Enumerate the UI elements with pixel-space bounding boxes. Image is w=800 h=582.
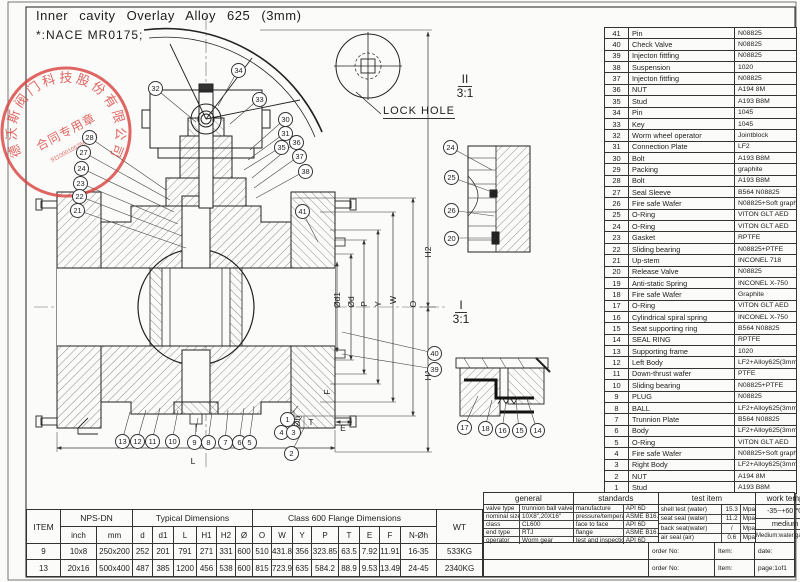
part-callout-balloon: 33: [252, 92, 267, 107]
sub-column-header: mm: [97, 527, 133, 544]
part-material: N08825: [735, 267, 796, 277]
part-name: Sliding bearing: [629, 380, 735, 390]
sub-column-header: H2: [217, 527, 236, 544]
order-row: order No: Item: page:1of1: [484, 560, 794, 576]
parts-table-row: 16 Cylindrical spiral spring INCONEL X-7…: [605, 312, 796, 323]
part-callout-balloon: 30: [278, 112, 293, 127]
dimension-value: 487: [133, 560, 153, 576]
part-number: 34: [605, 108, 629, 118]
part-name: Gasket: [629, 232, 735, 242]
part-number: 21: [605, 255, 629, 265]
part-number: 15: [605, 323, 629, 333]
weight-value: 2340KG: [437, 560, 482, 576]
order-item-label: Item:: [715, 560, 755, 576]
parts-table-row: 3 Right Body LF2+Alloy625(3mm): [605, 460, 796, 471]
parts-table-row: 18 Fire safe Wafer Graphite: [605, 289, 796, 300]
part-material: LF2+Alloy625(3mm): [735, 357, 796, 367]
part-material: VITON GLT AED: [735, 210, 796, 220]
part-name: O-Ring: [629, 210, 735, 220]
order-no-label: order No:: [649, 543, 715, 559]
test-label: back seat(water): [659, 524, 722, 533]
part-number: 22: [605, 244, 629, 254]
general-value: CL600: [520, 521, 573, 528]
part-number: 38: [605, 62, 629, 72]
group-header-class600-flange: Class 600 Flange Dimensions: [253, 510, 437, 527]
part-callout-balloon: 28: [82, 130, 97, 145]
part-callout-balloon: 36: [289, 135, 304, 150]
sub-column-header: F: [380, 527, 401, 544]
part-number: 36: [605, 85, 629, 95]
detail-i-name: I: [455, 299, 466, 313]
test-unit: Mpa: [741, 524, 755, 533]
parts-table-row: 29 Packing graphite: [605, 164, 796, 175]
sub-column-header: P: [312, 527, 339, 544]
dimension-value: 356: [293, 544, 312, 560]
sub-column-header: T: [339, 527, 360, 544]
standards-row: face to face API 6D: [574, 521, 658, 529]
part-material: INCONEL X-750: [735, 312, 796, 322]
general-label: class: [484, 521, 520, 528]
part-material: LF2+Alloy625(3mm): [735, 426, 796, 436]
part-callout-balloon: 38: [298, 164, 313, 179]
dimension-label: O: [408, 301, 418, 308]
part-name: NUT: [629, 471, 735, 481]
sub-column-header: d1: [153, 527, 174, 544]
dimension-value: 13.49: [380, 560, 401, 576]
test-label: shell test (water): [659, 505, 722, 514]
standards-label: face to face: [574, 521, 624, 528]
dimension-value: 584.2: [312, 560, 339, 576]
part-material: A193 B8M: [735, 153, 796, 163]
part-name: Seal Sleeve: [629, 187, 735, 197]
part-callout-balloon: 14: [530, 423, 545, 438]
part-callout-balloon: 26: [444, 203, 459, 218]
test-row: air seal (air) 0.6 Mpa: [659, 534, 755, 543]
order-no-label: order No:: [649, 560, 715, 576]
part-number: 13: [605, 346, 629, 356]
part-number: 4: [605, 448, 629, 458]
dimension-label: Y: [373, 301, 383, 307]
dimension-value: 10x8: [61, 544, 97, 560]
part-number: 17: [605, 301, 629, 311]
part-name: PLUG: [629, 392, 735, 402]
detail-ii-label: II 3:1: [450, 73, 480, 100]
part-number: 2: [605, 471, 629, 481]
part-material: Graphite: [735, 289, 796, 299]
part-material: RPTFE: [735, 335, 796, 345]
detail-i-label: I 3:1: [446, 299, 476, 326]
dimension-value: 791: [174, 544, 197, 560]
dimension-label: T: [308, 417, 313, 427]
dimension-label: P: [359, 301, 369, 307]
order-date-label: date:: [755, 543, 794, 559]
dimension-value: 600: [236, 544, 253, 560]
detail-i-scale: 3:1: [446, 313, 476, 326]
dimension-value: 271: [197, 544, 217, 560]
part-material: A193 B8M: [735, 96, 796, 106]
part-number: 23: [605, 232, 629, 242]
part-number: 9: [605, 392, 629, 402]
part-name: Bolt: [629, 153, 735, 163]
part-number: 25: [605, 210, 629, 220]
part-name: Connection Plate: [629, 142, 735, 152]
row-item-number: 9: [27, 544, 61, 560]
parts-table-row: 21 Up-stem INCONEL 718: [605, 255, 796, 266]
dimension-value: 500x400: [97, 560, 133, 576]
order-rows: order No: Item: date: order No: Item: pa…: [484, 543, 794, 576]
part-name: Injecton fittfing: [629, 51, 735, 61]
row-item-number: 13: [27, 560, 61, 576]
dimension-label: Ød: [346, 296, 356, 307]
parts-table-row: 7 Trunnion Plate B564 N08825: [605, 414, 796, 425]
dimension-label: Ød1: [332, 292, 342, 308]
part-name: O-Ring: [629, 301, 735, 311]
part-name: Worm wheel operator: [629, 130, 735, 140]
note-overlay-spec: Inner cavity Overlay Alloy 625 (3mm): [36, 8, 301, 23]
part-number: 5: [605, 437, 629, 447]
test-value: 11.2: [722, 515, 741, 524]
dimension-value: 24-45: [401, 560, 437, 576]
general-label: end type: [484, 529, 520, 536]
part-name: Anti-static Spring: [629, 278, 735, 288]
general-row: nominal size 10X8",20X16": [484, 513, 573, 521]
part-material: N08825: [735, 39, 796, 49]
standards-row: manufacture API 6D: [574, 505, 658, 513]
dimension-value: 9.53: [360, 560, 380, 576]
part-number: 12: [605, 357, 629, 367]
sub-column-header: H1: [197, 527, 217, 544]
part-callout-balloon: 8: [201, 435, 216, 450]
part-number: 31: [605, 142, 629, 152]
parts-table-row: 24 O-Ring VITON GLT AED: [605, 221, 796, 232]
part-name: O-Ring: [629, 221, 735, 231]
note-nace: *:NACE MR0175;: [36, 28, 143, 42]
general-row: valve type trunnion ball valve: [484, 505, 573, 513]
part-material: B564 N08825: [735, 187, 796, 197]
dimension-label: F: [322, 389, 332, 394]
part-callout-balloon: 7: [218, 435, 233, 450]
parts-table-row: 25 O-Ring VITON GLT AED: [605, 210, 796, 221]
part-material: LF2+Alloy625(3mm): [735, 460, 796, 470]
dimension-value: 7.92: [360, 544, 380, 560]
part-callout-balloon: 35: [274, 140, 289, 155]
part-number: 18: [605, 289, 629, 299]
standards-value: API 6D: [624, 521, 658, 528]
standards-header: standards: [574, 493, 658, 505]
test-row: shell test (water) 15.3 Mpa: [659, 505, 755, 515]
part-name: Fire safe Wafer: [629, 289, 735, 299]
medium-header: medium: [756, 519, 800, 530]
part-callout-balloon: 27: [76, 145, 91, 160]
part-callout-balloon: 21: [70, 203, 85, 218]
part-material: INCONEL X-750: [735, 278, 796, 288]
test-item-section: test item shell test (water) 15.3 Mpa se…: [659, 493, 756, 542]
part-callout-balloon: 34: [231, 63, 246, 78]
part-name: Trunnion Plate: [629, 414, 735, 424]
part-name: Right Body: [629, 460, 735, 470]
order-date-label: page:1of1: [755, 560, 794, 576]
parts-table-row: 33 Key 1045: [605, 119, 796, 130]
dimension-label: W: [388, 296, 398, 304]
parts-table-row: 22 Sliding bearing N08825+PTFE: [605, 244, 796, 255]
part-number: 33: [605, 119, 629, 129]
test-unit: Mpa: [741, 505, 755, 514]
part-number: 16: [605, 312, 629, 322]
part-name: Check Valve: [629, 39, 735, 49]
dimension-value: 63.5: [339, 544, 360, 560]
part-callout-balloon: 37: [292, 149, 307, 164]
test-row: back seat(water) / Mpa: [659, 524, 755, 534]
standards-label: manufacture: [574, 505, 624, 512]
part-number: 40: [605, 39, 629, 49]
part-callout-balloon: 2: [284, 446, 299, 461]
parts-table-row: 13 Supporting frame 1020: [605, 346, 796, 357]
parts-table-row: 37 Injecton fittfing N08825: [605, 73, 796, 84]
dimension-value: 250x200: [97, 544, 133, 560]
dimension-value: 600: [236, 560, 253, 576]
part-material: N08825+PTFE: [735, 244, 796, 254]
part-number: 7: [605, 414, 629, 424]
part-material: INCONEL 718: [735, 255, 796, 265]
part-number: 19: [605, 278, 629, 288]
part-number: 35: [605, 96, 629, 106]
part-material: N08825: [735, 392, 796, 402]
standards-row: flange ASME B16.5: [574, 529, 658, 537]
part-name: Sliding bearing: [629, 244, 735, 254]
sub-column-header: Ø: [236, 527, 253, 544]
detail-ii-name: II: [458, 73, 473, 87]
part-material: A194 8M: [735, 471, 796, 481]
parts-table: 41 Pin N08825 40 Check Valve N08825 39 I…: [604, 27, 797, 494]
test-value: 15.3: [722, 505, 741, 514]
part-number: 11: [605, 369, 629, 379]
dimension-value: 431.8: [272, 544, 293, 560]
dimension-value: 538: [217, 560, 236, 576]
test-item-header: test item: [659, 493, 755, 505]
column-header-wt: WT: [437, 510, 482, 544]
part-callout-balloon: 11: [145, 434, 160, 449]
part-name: Suspension: [629, 62, 735, 72]
dimension-value: 252: [133, 544, 153, 560]
parts-table-row: 40 Check Valve N08825: [605, 39, 796, 50]
parts-table-row: 4 Fire safe Wafer N08825+Soft graphite: [605, 448, 796, 459]
standards-value: API 6D: [624, 505, 658, 512]
part-callout-balloon: 1: [280, 412, 295, 427]
test-value: 0.6: [722, 534, 741, 543]
part-material: LF2+Alloy625(3mm): [735, 403, 796, 413]
part-callout-balloon: 32: [148, 81, 163, 96]
dimension-table: ITEM NPS-DN Typical Dimensions Class 600…: [26, 509, 483, 577]
part-number: 29: [605, 164, 629, 174]
part-material: RPTFE: [735, 232, 796, 242]
dimension-label: E: [340, 423, 346, 433]
part-callout-balloon: 40: [427, 346, 442, 361]
dimension-value: 88.9: [339, 560, 360, 576]
part-number: 6: [605, 426, 629, 436]
general-label: valve type: [484, 505, 520, 512]
test-unit: Mpa: [741, 534, 755, 543]
dimension-value: 1200: [174, 560, 197, 576]
order-row: order No: Item: date:: [484, 543, 794, 560]
parts-table-row: 8 BALL LF2+Alloy625(3mm): [605, 403, 796, 414]
part-name: SEAL RING: [629, 335, 735, 345]
part-material: N08825: [735, 28, 796, 38]
part-callout-balloon: 39: [427, 362, 442, 377]
part-material: A193 B8M: [735, 176, 796, 186]
dimension-value: 323.85: [312, 544, 339, 560]
weight-value: 533KG: [437, 544, 482, 560]
parts-table-row: 31 Connection Plate LF2: [605, 142, 796, 153]
parts-table-row: 35 Stud A193 B8M: [605, 96, 796, 107]
sub-column-header: L: [174, 527, 197, 544]
parts-table-row: 27 Seal Sleeve B564 N08825: [605, 187, 796, 198]
part-material: graphite: [735, 164, 796, 174]
part-callout-balloon: 22: [72, 189, 87, 204]
parts-table-row: 19 Anti-static Spring INCONEL X-750: [605, 278, 796, 289]
part-name: Key: [629, 119, 735, 129]
part-material: VITON GLT AED: [735, 437, 796, 447]
part-callout-balloon: 24: [443, 140, 458, 155]
order-empty-cell: [484, 560, 649, 576]
part-callout-balloon: 12: [130, 434, 145, 449]
part-name: Bolt: [629, 176, 735, 186]
standards-value: ASME B16.34: [624, 513, 658, 520]
part-number: 26: [605, 198, 629, 208]
parts-table-row: 14 SEAL RING RPTFE: [605, 335, 796, 346]
dimension-value: 456: [197, 560, 217, 576]
part-material: VITON GLT AED: [735, 301, 796, 311]
parts-table-row: 10 Sliding bearing N08825+PTFE: [605, 380, 796, 391]
medium-value: Medium:water,gas,oil.: [756, 530, 800, 543]
test-label: air seal (air): [659, 534, 722, 543]
part-number: 28: [605, 176, 629, 186]
sub-column-header: W: [272, 527, 293, 544]
part-material: N08825+PTFE: [735, 380, 796, 390]
parts-table-row: 15 Seat supporting ring B564 N08825: [605, 323, 796, 334]
dimension-value: 635: [293, 560, 312, 576]
dimension-label: L: [191, 456, 196, 466]
part-name: BALL: [629, 403, 735, 413]
sub-column-header: N-Øh: [401, 527, 437, 544]
standards-row: pressure/temperature ASME B16.34: [574, 513, 658, 521]
general-header: general: [484, 493, 573, 505]
dimension-value: 510: [253, 544, 272, 560]
detail-ii-scale: 3:1: [450, 87, 480, 100]
part-callout-balloon: 5: [242, 435, 257, 450]
part-material: N08825: [735, 51, 796, 61]
part-name: NUT: [629, 85, 735, 95]
part-number: 41: [605, 28, 629, 38]
general-value: trunnion ball valve: [520, 505, 573, 512]
standards-label: pressure/temperature: [574, 513, 624, 520]
parts-table-row: 12 Left Body LF2+Alloy625(3mm): [605, 357, 796, 368]
parts-table-row: 28 Bolt A193 B8M: [605, 176, 796, 187]
part-name: Fire safe Wafer: [629, 448, 735, 458]
general-section: general valve type trunnion ball valve n…: [484, 493, 574, 542]
part-name: Fire safe Wafer: [629, 198, 735, 208]
parts-table-row: 34 Pin 1045: [605, 108, 796, 119]
part-material: 1045: [735, 108, 796, 118]
part-callout-balloon: 10: [165, 434, 180, 449]
part-callout-balloon: 18: [478, 421, 493, 436]
sub-column-header: inch: [61, 527, 97, 544]
parts-table-row: 6 Body LF2+Alloy625(3mm): [605, 426, 796, 437]
general-row: class CL600: [484, 521, 573, 529]
general-value: 10X8",20X16": [520, 513, 573, 520]
group-header-nps-dn: NPS-DN: [61, 510, 133, 527]
part-callout-balloon: 9: [187, 435, 202, 450]
test-row: seat seal (water) 11.2 Mpa: [659, 515, 755, 525]
part-name: Injecton fittfing: [629, 73, 735, 83]
part-name: Seat supporting ring: [629, 323, 735, 333]
parts-table-row: 26 Fire safe Wafer N08825+Soft graphite: [605, 198, 796, 209]
sub-column-header: E: [360, 527, 380, 544]
part-number: 20: [605, 267, 629, 277]
dimension-value: 11.91: [380, 544, 401, 560]
dimension-value: 723.9: [272, 560, 293, 576]
parts-table-row: 11 Down-thrust wafer PTFE: [605, 369, 796, 380]
parts-table-row: 36 NUT A194 8M: [605, 85, 796, 96]
order-item-label: Item:: [715, 543, 755, 559]
part-callout-balloon: 15: [512, 423, 527, 438]
part-number: 10: [605, 380, 629, 390]
parts-table-row: 20 Release Valve N08825: [605, 267, 796, 278]
dimension-value: 20x16: [61, 560, 97, 576]
dimension-label: H2: [423, 247, 433, 258]
part-number: 24: [605, 221, 629, 231]
part-number: 37: [605, 73, 629, 83]
part-number: 27: [605, 187, 629, 197]
part-name: Cylindrical spiral spring: [629, 312, 735, 322]
part-material: 1020: [735, 62, 796, 72]
part-material: B564 N08825: [735, 323, 796, 333]
part-callout-balloon: 16: [495, 423, 510, 438]
title-block: general valve type trunnion ball valve n…: [483, 492, 795, 577]
part-number: 32: [605, 130, 629, 140]
parts-table-row: 2 NUT A194 8M: [605, 471, 796, 482]
part-name: Down-thrust wafer: [629, 369, 735, 379]
part-name: Up-stem: [629, 255, 735, 265]
part-callout-balloon: 20: [444, 231, 459, 246]
part-callout-balloon: 17: [457, 420, 472, 435]
order-empty-cell: [484, 543, 649, 559]
part-material: B564 N08825: [735, 414, 796, 424]
dimension-value: 331: [217, 544, 236, 560]
sub-column-header: d: [133, 527, 153, 544]
part-name: Release Valve: [629, 267, 735, 277]
part-number: 3: [605, 460, 629, 470]
dimension-value: 815: [253, 560, 272, 576]
part-callout-balloon: 25: [444, 170, 459, 185]
part-name: Packing: [629, 164, 735, 174]
test-value: /: [722, 524, 741, 533]
dimension-value: 385: [153, 560, 174, 576]
part-name: Left Body: [629, 357, 735, 367]
standards-label: flange: [574, 529, 624, 536]
parts-table-row: 5 O-Ring VITON GLT AED: [605, 437, 796, 448]
part-name: Supporting frame: [629, 346, 735, 356]
part-material: N08825+Soft graphite: [735, 198, 796, 208]
part-number: 8: [605, 403, 629, 413]
part-material: N08825+Soft graphite: [735, 448, 796, 458]
standards-value: ASME B16.5: [624, 529, 658, 536]
test-unit: Mpa: [741, 515, 755, 524]
part-material: VITON GLT AED: [735, 221, 796, 231]
part-material: Jointblock: [735, 130, 796, 140]
column-header-item: ITEM: [27, 510, 61, 544]
parts-table-row: 32 Worm wheel operator Jointblock: [605, 130, 796, 141]
parts-table-row: 41 Pin N08825: [605, 28, 796, 39]
